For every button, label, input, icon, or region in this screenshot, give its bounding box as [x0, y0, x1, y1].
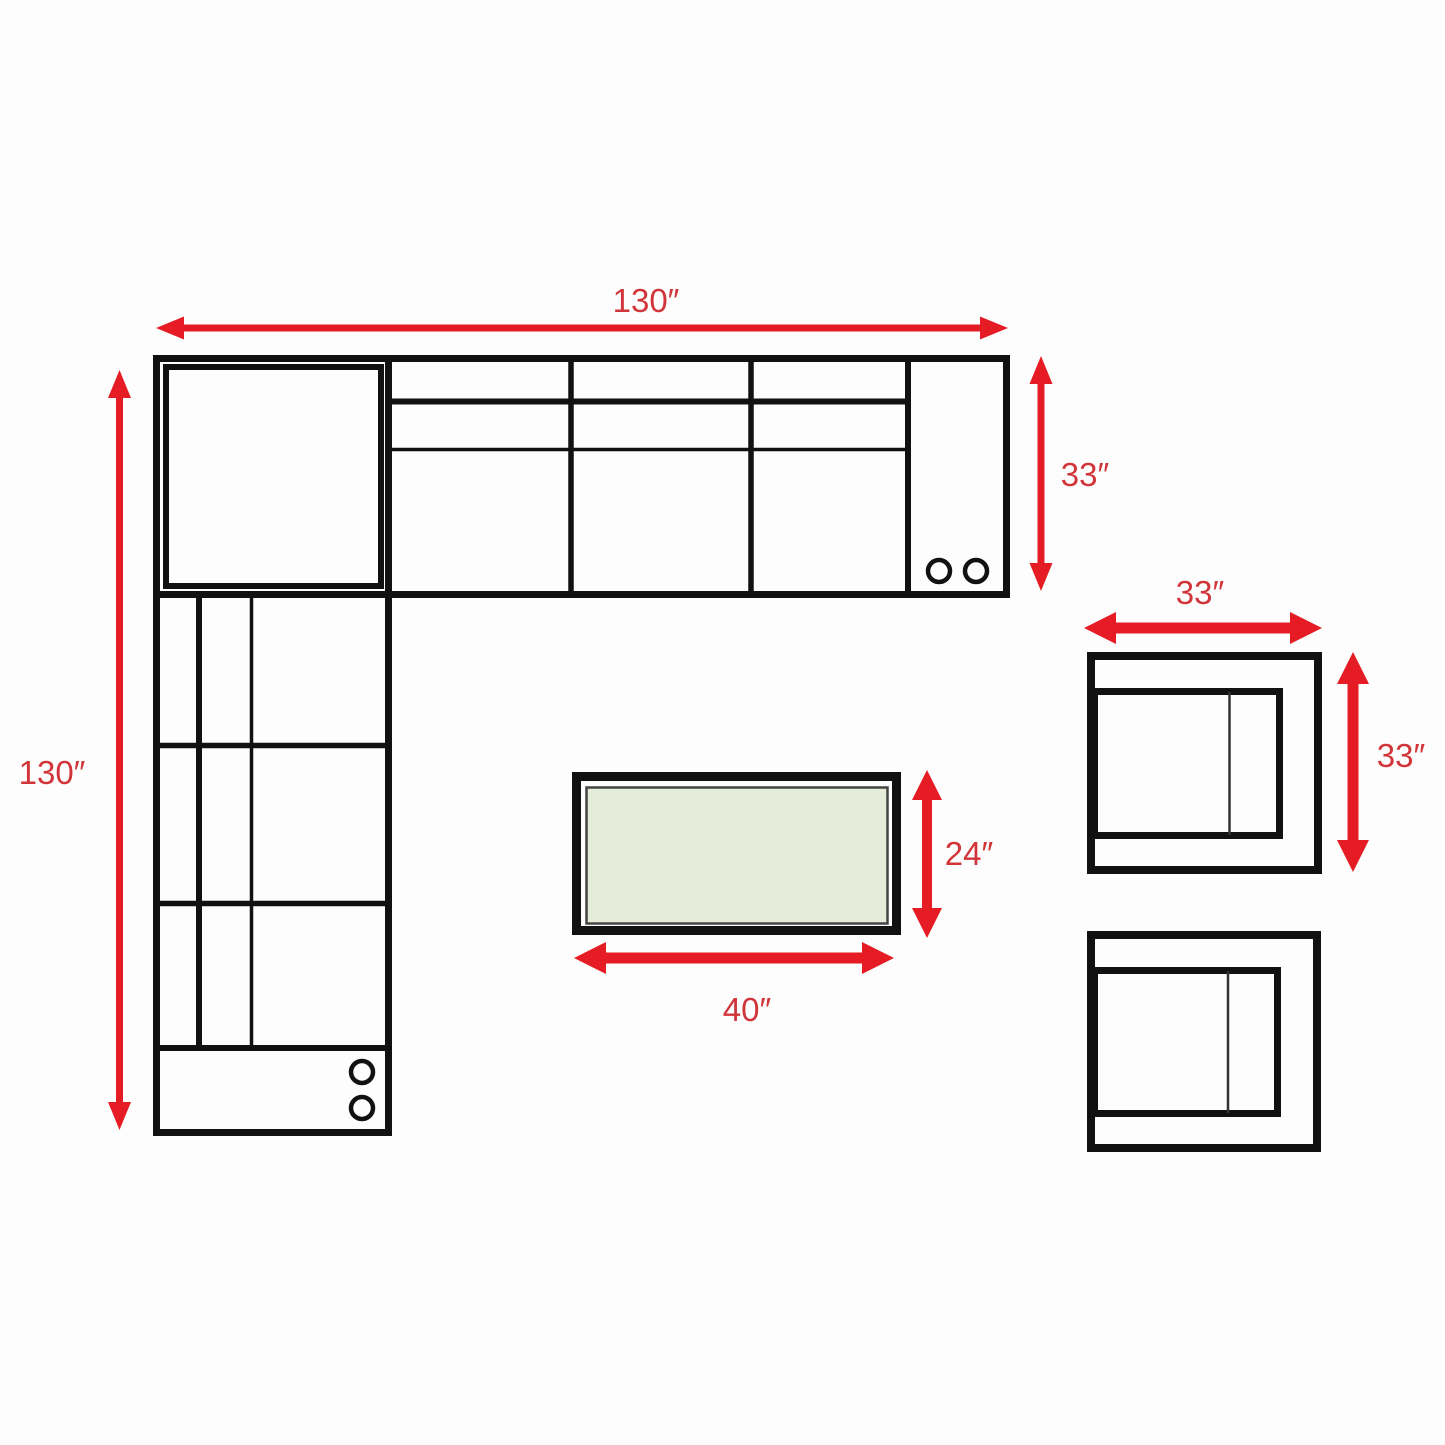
- svg-text:33″: 33″: [1176, 574, 1225, 611]
- svg-text:130″: 130″: [613, 282, 680, 319]
- svg-text:33″: 33″: [1377, 737, 1426, 774]
- svg-text:130″: 130″: [19, 754, 86, 791]
- svg-text:40″: 40″: [723, 991, 772, 1028]
- svg-text:24″: 24″: [945, 835, 994, 872]
- svg-text:33″: 33″: [1061, 456, 1110, 493]
